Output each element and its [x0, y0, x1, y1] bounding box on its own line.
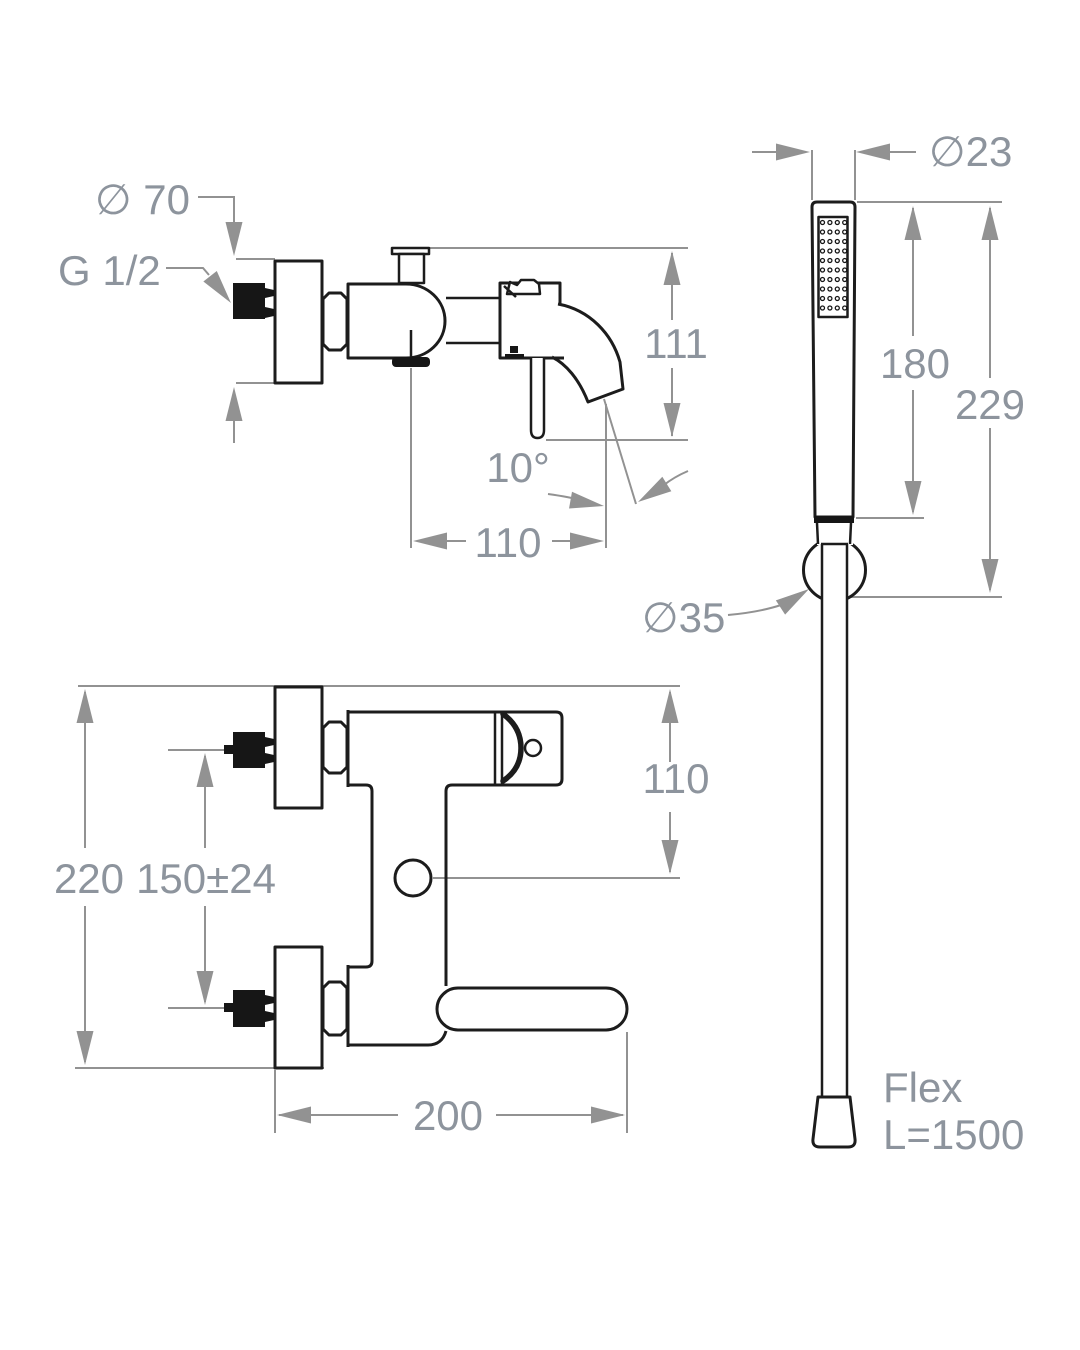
- connector-nut-lower: [323, 982, 347, 1035]
- front-view: 220 150±24 110 200: [54, 686, 710, 1139]
- hose-flex-label-line1: Flex: [883, 1064, 962, 1111]
- arrowhead: [905, 206, 922, 240]
- inlet-stem: [265, 1011, 274, 1022]
- handle-arc: [503, 714, 521, 781]
- arrowhead: [197, 753, 214, 787]
- label-thread: G 1/2: [58, 247, 161, 294]
- body-trunk-left: [348, 785, 372, 967]
- diverter-button: [395, 860, 431, 896]
- wall-flange-lower: [275, 947, 322, 1068]
- handle-stem: [531, 358, 544, 438]
- hose-flex-label-line2: L=1500: [883, 1111, 1024, 1158]
- extension-lines: [812, 150, 855, 200]
- angle-reference-line: [604, 399, 636, 504]
- arrowhead: [776, 144, 810, 161]
- hand-shower-drawing: [804, 202, 866, 1147]
- dim-line: [198, 197, 234, 226]
- arrowhead: [77, 689, 94, 723]
- flex-hose: [822, 544, 847, 1097]
- inlet-stem: [265, 995, 274, 1005]
- extension-lines: [236, 259, 275, 383]
- hose-end-fitting: [813, 1097, 855, 1147]
- label-head-length: 180: [880, 340, 950, 387]
- inlet-stem: [265, 753, 274, 764]
- arrowhead: [662, 840, 679, 874]
- label-bracket-diameter: ∅35: [642, 594, 725, 641]
- spout-front: [437, 988, 627, 1030]
- inlet-stem: [265, 307, 274, 318]
- hand-shower-view: ∅23 180 229 ∅35 Flex L=1500: [642, 128, 1025, 1158]
- body-bottom-edge: [348, 1031, 446, 1045]
- inlet-connector-lower: [233, 990, 265, 1027]
- arrowhead: [856, 144, 890, 161]
- indicator-mark: [510, 346, 518, 353]
- arrowhead: [982, 206, 999, 240]
- wall-flange: [275, 261, 322, 383]
- front-view-dimensions: 220 150±24 110 200: [54, 686, 710, 1139]
- wall-flange-upper: [275, 687, 322, 808]
- arrowhead: [633, 477, 671, 509]
- label-angle: 10°: [486, 444, 550, 491]
- inlet-stub: [224, 1003, 233, 1012]
- body-ring-nut: [392, 357, 430, 367]
- arrowhead: [77, 1031, 94, 1065]
- handle-pin: [525, 740, 541, 756]
- label-inlet-spacing: 150±24: [136, 855, 276, 902]
- arrowhead: [226, 222, 243, 256]
- label-overall-height: 220: [54, 855, 124, 902]
- arrowhead: [664, 251, 681, 285]
- connecting-sleeve: [446, 298, 500, 343]
- label-top-to-axis: 110: [643, 755, 710, 802]
- leader-line: [664, 471, 688, 485]
- inlet-connector: [233, 283, 265, 319]
- inlet-connector-upper: [233, 732, 265, 768]
- arrowhead: [226, 387, 243, 421]
- indicator-dash: [505, 354, 524, 358]
- leader-line: [166, 268, 209, 275]
- side-view: ∅ 70 G 1/2 111 10° 110: [58, 176, 708, 566]
- arrowhead: [662, 689, 679, 723]
- inlet-stub: [224, 745, 233, 754]
- arrowhead: [277, 1107, 311, 1124]
- leader-line: [728, 605, 781, 615]
- label-height: 111: [644, 320, 708, 367]
- connector-nut: [323, 293, 347, 350]
- arrowhead: [591, 1107, 625, 1124]
- cartridge-groove: [495, 712, 502, 785]
- arrowhead: [664, 403, 681, 437]
- arrowhead: [570, 533, 604, 550]
- arrowhead: [203, 271, 237, 308]
- arrowhead: [569, 492, 605, 515]
- mixer-body: [348, 284, 445, 358]
- inlet-stem: [265, 288, 274, 298]
- bracket-cover: [823, 545, 846, 603]
- diverter-knob: [399, 254, 424, 283]
- arrowhead: [413, 533, 447, 550]
- spout: [552, 304, 623, 402]
- connector-nut-upper: [323, 722, 347, 773]
- arrowhead: [905, 481, 922, 515]
- inlet-stem: [265, 737, 274, 747]
- arrowhead: [197, 971, 214, 1005]
- side-view-dimensions: ∅ 70 G 1/2 111 10° 110: [58, 176, 708, 566]
- wand-grip-band: [814, 516, 854, 523]
- label-head-diameter: ∅23: [929, 128, 1012, 175]
- label-flange-diameter: ∅ 70: [95, 176, 190, 223]
- side-view-drawing: [233, 248, 623, 438]
- label-reach: 110: [475, 519, 542, 566]
- technical-drawing: ∅ 70 G 1/2 111 10° 110: [0, 0, 1080, 1350]
- label-total-length: 229: [955, 381, 1025, 428]
- arrowhead: [982, 559, 999, 593]
- label-spout-reach: 200: [413, 1092, 483, 1139]
